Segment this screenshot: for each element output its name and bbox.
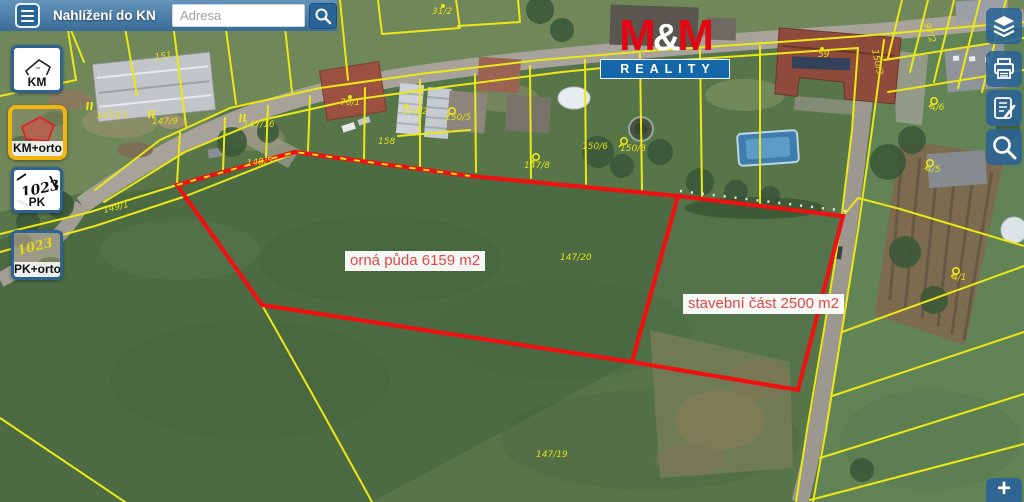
parcel-number: 150/2 xyxy=(402,107,428,117)
search-button[interactable] xyxy=(309,3,337,29)
print-button[interactable] xyxy=(986,51,1022,87)
parcel-number: 4/5 xyxy=(926,165,941,175)
parcel-number: 150/8 xyxy=(620,144,646,154)
header-bar: Nahlížení do KN xyxy=(0,0,337,31)
parcel-number: 147/9 xyxy=(152,117,178,127)
report-button[interactable] xyxy=(986,90,1022,126)
map-mode-km-orto-button[interactable]: KM+orto xyxy=(8,105,67,160)
km-label: KM xyxy=(14,75,60,90)
map-mode-pk-button[interactable]: 1023 PK xyxy=(11,167,63,213)
report-edit-icon xyxy=(991,95,1017,121)
area-label-orna-puda: orná půda 6159 m2 xyxy=(345,251,485,271)
layers-button[interactable] xyxy=(986,8,1022,44)
pk-orto-label: PK+orto xyxy=(14,262,60,277)
search-icon xyxy=(990,133,1018,161)
parcel-number: 147/16 xyxy=(243,120,275,130)
watermark-mm: M&M xyxy=(600,16,730,58)
parcel-number: 150/5 xyxy=(445,113,471,123)
watermark-reality: REALITY xyxy=(600,59,730,79)
zoom-in-button[interactable]: + xyxy=(986,478,1022,502)
parcel-number: 59 xyxy=(818,50,830,60)
printer-icon xyxy=(991,56,1017,82)
area-label-stavebni-cast: stavební část 2500 m2 xyxy=(683,294,844,314)
parcel-number: 150/6 xyxy=(582,142,608,152)
menu-button[interactable] xyxy=(15,3,40,28)
parcel-number: 147/20 xyxy=(560,253,592,263)
map-search-button[interactable] xyxy=(986,129,1022,165)
parcel-number: 31/2 xyxy=(432,7,452,17)
parcel-number: 147/19 xyxy=(536,450,568,460)
app-window: 151147/13147/9147/16148/5149/131/270/115… xyxy=(0,0,1024,502)
map-canvas[interactable]: 151147/13147/9147/16148/5149/131/270/115… xyxy=(0,0,1024,502)
map-mode-pk-orto-button[interactable]: 1023 PK+orto xyxy=(11,230,63,280)
search-icon xyxy=(314,7,332,25)
pk-label: PK xyxy=(14,195,60,210)
km-orto-label: KM+orto xyxy=(12,141,63,156)
map-mode-km-button[interactable]: KM xyxy=(11,45,63,93)
parcel-number: 70/1 xyxy=(340,98,360,108)
layers-icon xyxy=(991,13,1017,39)
parcel-number: 158 xyxy=(378,137,395,147)
parcel-number: 147/13 xyxy=(96,111,128,121)
parcel-number: 147/8 xyxy=(524,161,550,171)
parcel-number: 4/6 xyxy=(930,103,945,113)
address-search-input[interactable] xyxy=(172,4,305,27)
watermark-logo: M&M REALITY xyxy=(600,16,730,79)
parcel-number: 4/1 xyxy=(952,273,966,283)
page-title: Nahlížení do KN xyxy=(53,0,156,31)
